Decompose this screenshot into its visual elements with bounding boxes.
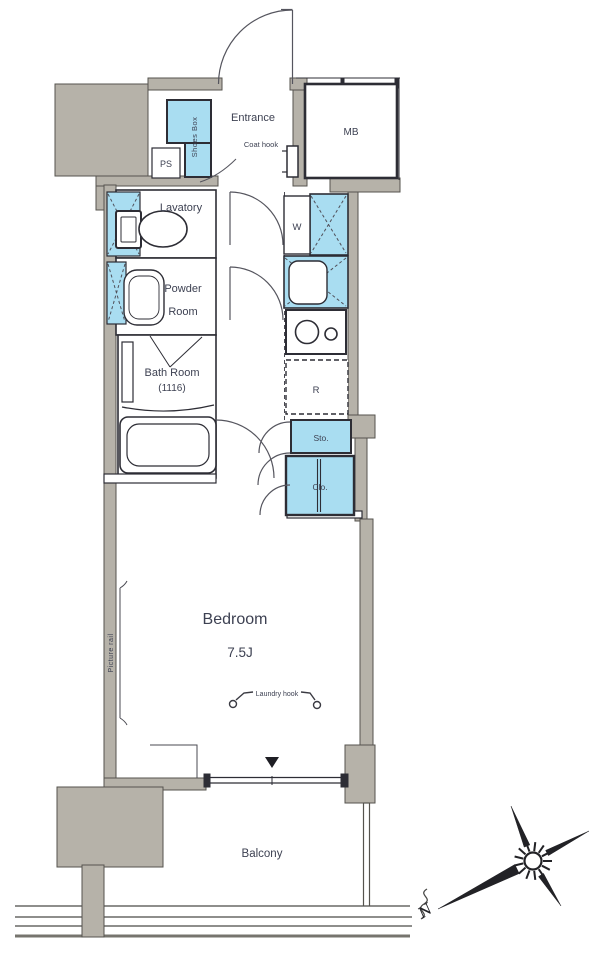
balcony-railing — [364, 803, 370, 906]
bath-room-size: (1116) — [158, 383, 185, 394]
balcony-label: Balcony — [242, 848, 283, 860]
fridge-label: R — [313, 385, 320, 396]
powder-room-label-line1: Powder — [164, 283, 202, 295]
beam-line — [150, 745, 197, 778]
compass-north-label: N — [414, 899, 437, 922]
meter-box-label: MB — [344, 127, 359, 138]
road-lines — [15, 889, 427, 936]
powder-door-arc — [230, 267, 283, 320]
toilet-icon — [116, 211, 187, 248]
entrance-door-arc — [219, 10, 293, 84]
balcony-window — [204, 774, 348, 787]
laundry-hook-label: Laundry hook — [256, 691, 299, 698]
hall-door-arc — [216, 420, 274, 478]
bath-bedroom-wall — [104, 474, 216, 483]
closet-label: Clo. — [312, 482, 327, 492]
powder-room-label-line2: Room — [168, 306, 197, 318]
coat-hook-icon — [282, 146, 298, 177]
lavatory-label: Lavatory — [160, 202, 203, 214]
storage-label: Sto. — [313, 433, 328, 443]
shoes-box-label: Shoes Box — [190, 117, 199, 158]
picture-rail-label: Picture rail — [108, 633, 115, 672]
triangle-marker — [265, 757, 279, 768]
washer-label: W — [293, 222, 302, 233]
coat-hook-label: Coat hook — [244, 140, 278, 149]
entrance-label: Entrance — [231, 112, 275, 124]
stove-icon — [286, 310, 346, 354]
floorplan-page: Entrance Coat hook MB PS Shoes Box Lavat… — [0, 0, 610, 970]
compass-icon — [438, 806, 589, 909]
bedroom-label: Bedroom — [203, 611, 268, 628]
bath-room-label: Bath Room — [144, 367, 199, 379]
picture-rail — [120, 581, 127, 725]
powder-sink-icon — [124, 270, 164, 325]
bedroom-size: 7.5J — [227, 645, 253, 660]
lavatory-door-arc — [230, 192, 283, 245]
kitchen-sink-icon — [289, 261, 327, 304]
storage-door-arc — [259, 422, 290, 453]
floorplan-drawing: Entrance Coat hook MB PS Shoes Box Lavat… — [0, 0, 610, 970]
pipe-space-label: PS — [160, 159, 172, 169]
shoes-box — [167, 100, 211, 143]
